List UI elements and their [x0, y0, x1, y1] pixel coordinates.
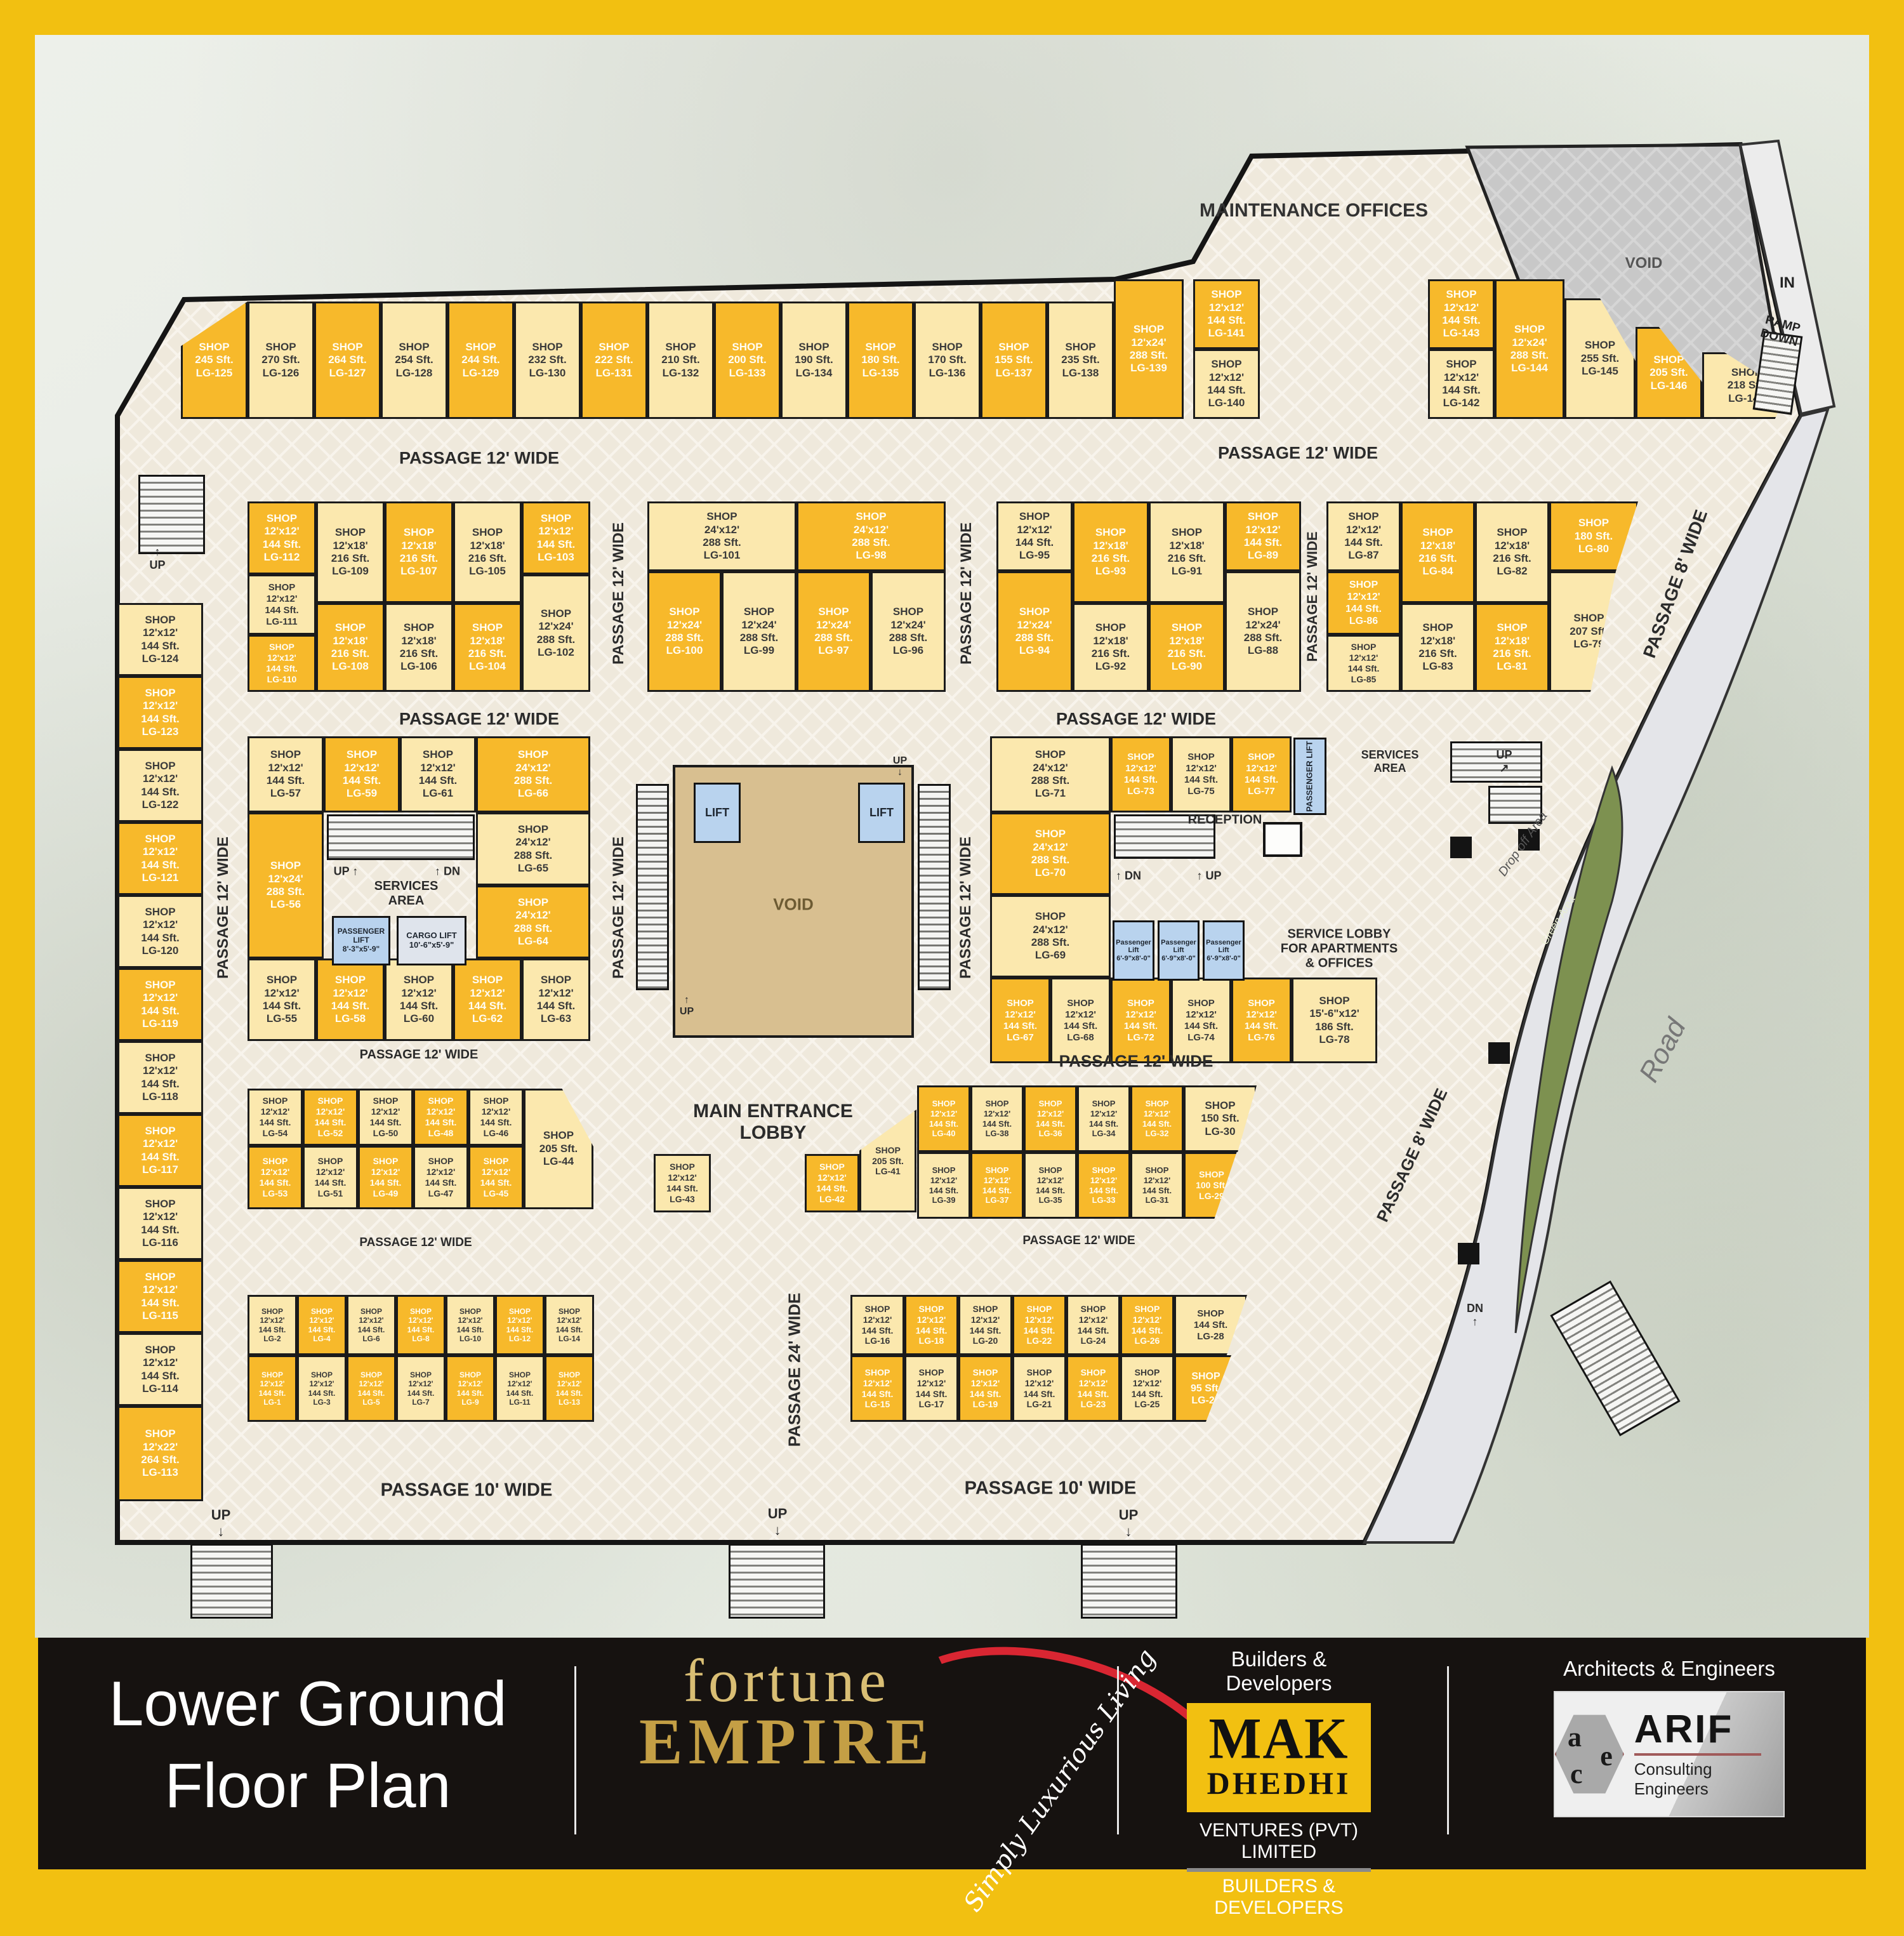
arif-subtitle: Consulting Engineers: [1634, 1760, 1783, 1799]
shop-LG-60: SHOP12'x12'144 Sft.LG-60: [385, 958, 453, 1041]
shop-LG-85: SHOP12'x12'144 Sft.LG-85: [1326, 635, 1401, 692]
shop-LG-73: SHOP12'x12'144 Sft.LG-73: [1111, 736, 1171, 812]
shop-LG-67: SHOP12'x12'144 Sft.LG-67: [990, 978, 1050, 1063]
lift-zone: PASSENGER LIFT: [1293, 738, 1326, 815]
shop-LG-16: SHOP12'x12'144 Sft.LG-16: [850, 1295, 904, 1355]
shop-LG-56: SHOP12'x24'288 Sft.LG-56: [248, 812, 324, 958]
stair-zone: [1550, 1280, 1680, 1436]
cargo-zone: CARGO LIFT10'-6"x5'-9": [397, 916, 466, 965]
developer-subtitle2: BUILDERS & DEVELOPERS: [1180, 1876, 1377, 1919]
shop-LG-143: SHOP12'x12'144 Sft.LG-143: [1428, 279, 1495, 349]
shop-LG-107: SHOP12'x18'216 Sft.LG-107: [385, 501, 453, 603]
shop-LG-110: SHOP12'x12'144 Sft.LG-110: [248, 635, 316, 692]
shop-LG-95: SHOP12'x12'144 Sft.LG-95: [996, 501, 1073, 571]
shop-LG-76: SHOP12'x12'144 Sft.LG-76: [1231, 978, 1292, 1063]
shop-LG-97: SHOP12'x24'288 Sft.LG-97: [797, 571, 871, 692]
shop-LG-1: SHOP12'x12'144 Sft.LG-1: [248, 1355, 297, 1422]
shop-LG-46: SHOP12'x12'144 Sft.LG-46: [468, 1089, 524, 1146]
shop-LG-45: SHOP12'x12'144 Sft.LG-45: [468, 1146, 524, 1209]
shop-LG-112: SHOP12'x12'144 Sft.LG-112: [248, 501, 316, 574]
shop-LG-89: SHOP12'x12'144 Sft.LG-89: [1225, 501, 1301, 571]
title-line1: Lower Ground: [57, 1663, 559, 1745]
architect-heading: Architects & Engineers: [1536, 1657, 1802, 1681]
plan-label: PASSAGE 12' WIDE: [958, 522, 975, 665]
shop-LG-55: SHOP12'x12'144 Sft.LG-55: [248, 958, 316, 1041]
shop-LG-115: SHOP12'x12'144 Sft.LG-115: [117, 1260, 203, 1333]
shop-LG-26: SHOP12'x12'144 Sft.LG-26: [1120, 1295, 1174, 1355]
plan-label: Green Area: [1538, 894, 1578, 948]
plan-label: RECEPTION: [1188, 813, 1262, 828]
shop-LG-118: SHOP12'x12'144 Sft.LG-118: [117, 1041, 203, 1114]
plan-label: IN: [1780, 274, 1795, 292]
plan-label: SERVICES AREA: [1361, 748, 1419, 775]
shop-LG-92: SHOP12'x18'216 Sft.LG-92: [1073, 603, 1149, 692]
shop-LG-120: SHOP12'x12'144 Sft.LG-120: [117, 895, 203, 968]
plan-label: PASSAGE 12' WIDE: [610, 837, 628, 979]
shop-LG-132: SHOP210 Sft.LG-132: [647, 302, 714, 419]
shop-LG-75: SHOP12'x12'144 Sft.LG-75: [1171, 736, 1231, 812]
mak-logo-text: MAK: [1208, 1713, 1349, 1765]
shop-LG-109: SHOP12'x18'216 Sft.LG-109: [316, 501, 385, 603]
plan-label: PASSAGE 12' WIDE: [610, 522, 628, 665]
shop-LG-106: SHOP12'x18'216 Sft.LG-106: [385, 603, 453, 692]
plan-label: ↑ UP: [149, 545, 165, 572]
stair-zone: [1081, 1544, 1177, 1619]
plan-label: Road: [1633, 1014, 1693, 1087]
shop-LG-31: SHOP12'x12'144 Sft.LG-31: [1130, 1152, 1184, 1219]
plan-label: PASSAGE 8' WIDE: [1639, 507, 1712, 661]
shop-LG-86: SHOP12'x12'144 Sft.LG-86: [1326, 571, 1401, 635]
shop-LG-130: SHOP232 Sft.LG-130: [514, 302, 581, 419]
desk-zone: [1263, 822, 1302, 857]
shop-LG-48: SHOP12'x12'144 Sft.LG-48: [413, 1089, 468, 1146]
shop-LG-140: SHOP12'x12'144 Sft.LG-140: [1193, 349, 1260, 419]
shop-LG-12: SHOP12'x12'144 Sft.LG-12: [495, 1295, 545, 1355]
shop-LG-105: SHOP12'x18'216 Sft.LG-105: [453, 501, 522, 603]
shop-LG-43: SHOP12'x12'144 Sft.LG-43: [654, 1154, 711, 1212]
lift-zone: LIFT: [694, 783, 741, 843]
shop-LG-15: SHOP12'x12'144 Sft.LG-15: [850, 1355, 904, 1422]
shop-LG-11: SHOP12'x12'144 Sft.LG-11: [495, 1355, 545, 1422]
plan-title: Lower Ground Floor Plan: [57, 1663, 559, 1826]
mak-dhedhi-logo: MAK DHEDHI: [1187, 1703, 1371, 1812]
shop-LG-74: SHOP12'x12'144 Sft.LG-74: [1171, 978, 1231, 1063]
shop-LG-108: SHOP12'x18'216 Sft.LG-108: [316, 603, 385, 692]
plan-label: SERVICE LOBBY FOR APARTMENTS & OFFICES: [1281, 927, 1398, 971]
shop-LG-125: SHOP245 Sft.LG-125: [181, 302, 248, 419]
shop-LG-98: SHOP24'x12'288 Sft.LG-98: [797, 501, 946, 571]
shop-LG-23: SHOP12'x12'144 Sft.LG-23: [1066, 1355, 1120, 1422]
shop-LG-19: SHOP12'x12'144 Sft.LG-19: [958, 1355, 1012, 1422]
shop-LG-135: SHOP180 Sft.LG-135: [847, 302, 914, 419]
plan-label: PASSAGE 8' WIDE: [1373, 1085, 1452, 1225]
shop-LG-52: SHOP12'x12'144 Sft.LG-52: [303, 1089, 358, 1146]
shop-LG-17: SHOP12'x12'144 Sft.LG-17: [904, 1355, 958, 1422]
shop-LG-33: SHOP12'x12'144 Sft.LG-33: [1077, 1152, 1130, 1219]
shop-LG-129: SHOP244 Sft.LG-129: [447, 302, 514, 419]
plan-label: PASSAGE 12' WIDE: [399, 449, 559, 468]
lift-zone: PassengerLift6'-9"x8'-0": [1203, 920, 1245, 981]
shop-LG-10: SHOP12'x12'144 Sft.LG-10: [446, 1295, 495, 1355]
lift-zone: LIFT: [858, 783, 905, 843]
shop-LG-57: SHOP12'x12'144 Sft.LG-57: [248, 736, 324, 812]
shop-LG-8: SHOP12'x12'144 Sft.LG-8: [396, 1295, 446, 1355]
plan-label: PASSAGE 12' WIDE: [359, 1236, 472, 1250]
shop-LG-124: SHOP12'x12'144 Sft.LG-124: [117, 603, 203, 676]
shop-LG-144: SHOP12'x24'288 Sft.LG-144: [1495, 279, 1564, 419]
plan-label: UP ↓: [893, 755, 907, 778]
shop-LG-42: SHOP12'x12'144 Sft.LG-42: [805, 1154, 859, 1212]
shop-LG-146: SHOP205 Sft.LG-146: [1636, 327, 1702, 419]
shop-LG-7: SHOP12'x12'144 Sft.LG-7: [396, 1355, 446, 1422]
shop-LG-13: SHOP12'x12'144 Sft.LG-13: [545, 1355, 594, 1422]
plan-label: ↑ DN: [435, 865, 460, 878]
shop-LG-63: SHOP12'x12'144 Sft.LG-63: [522, 958, 590, 1041]
shop-LG-139: SHOP12'x24'288 Sft.LG-139: [1114, 279, 1184, 419]
shop-LG-128: SHOP254 Sft.LG-128: [381, 302, 447, 419]
shop-LG-138: SHOP235 Sft.LG-138: [1047, 302, 1114, 419]
shop-LG-90: SHOP12'x18'216 Sft.LG-90: [1149, 603, 1225, 692]
shop-LG-50: SHOP12'x12'144 Sft.LG-50: [358, 1089, 413, 1146]
shop-LG-83: SHOP12'x18'216 Sft.LG-83: [1401, 603, 1475, 692]
shop-LG-39: SHOP12'x12'144 Sft.LG-39: [917, 1152, 970, 1219]
plan-label: UP ↓: [211, 1507, 231, 1540]
plan-label: VOID: [773, 895, 814, 915]
arif-name: ARIF: [1634, 1710, 1783, 1749]
shop-LG-29: SHOP100 Sft.LG-29: [1184, 1152, 1240, 1219]
shop-LG-79: SHOP207 Sft.LG-79: [1549, 571, 1629, 692]
arif-logo: a e c ARIF Consulting Engineers: [1554, 1691, 1785, 1817]
aec-cube-icon: a e c: [1555, 1713, 1624, 1795]
shop-LG-69: SHOP24'x12'288 Sft.LG-69: [990, 895, 1111, 978]
shop-LG-34: SHOP12'x12'144 Sft.LG-34: [1077, 1085, 1130, 1152]
shop-LG-137: SHOP155 Sft.LG-137: [981, 302, 1047, 419]
shop-LG-77: SHOP12'x12'144 Sft.LG-77: [1231, 736, 1292, 812]
post-zone: [1458, 1243, 1479, 1264]
plan-label: DN ↑: [1467, 1302, 1483, 1329]
stair-zone: [190, 1544, 273, 1619]
shop-LG-59: SHOP12'x12'144 Sft.LG-59: [324, 736, 400, 812]
plan-label: PASSAGE 12' WIDE: [215, 837, 232, 979]
shop-LG-94: SHOP12'x24'288 Sft.LG-94: [996, 571, 1073, 692]
plan-label: MAIN ENTRANCE LOBBY: [693, 1101, 853, 1144]
shop-LG-68: SHOP12'x12'144 Sft.LG-68: [1050, 978, 1111, 1063]
shop-LG-127: SHOP264 Sft.LG-127: [314, 302, 381, 419]
shop-LG-99: SHOP12'x24'288 Sft.LG-99: [722, 571, 797, 692]
cube-letter-a: a: [1568, 1721, 1582, 1753]
shop-LG-30: SHOP150 Sft.LG-30: [1184, 1085, 1257, 1152]
shop-LG-3: SHOP12'x12'144 Sft.LG-3: [297, 1355, 347, 1422]
shop-LG-102: SHOP12'x24'288 Sft.LG-102: [522, 574, 590, 692]
stair-zone: [729, 1544, 825, 1619]
shop-LG-100: SHOP12'x24'288 Sft.LG-100: [647, 571, 722, 692]
esc-zone: [636, 784, 669, 990]
shop-LG-84: SHOP12'x18'216 Sft.LG-84: [1401, 501, 1475, 603]
shop-LG-101: SHOP24'x12'288 Sft.LG-101: [647, 501, 797, 571]
cube-letter-e: e: [1600, 1740, 1613, 1772]
shop-LG-80: SHOP180 Sft.LG-80: [1549, 501, 1638, 571]
plan-label: UP ↓: [1119, 1507, 1139, 1540]
shop-LG-62: SHOP12'x12'144 Sft.LG-62: [453, 958, 522, 1041]
shop-LG-37: SHOP12'x12'144 Sft.LG-37: [970, 1152, 1024, 1219]
shop-LG-65: SHOP24'x12'288 Sft.LG-65: [476, 812, 590, 885]
shop-LG-136: SHOP170 Sft.LG-136: [914, 302, 981, 419]
shop-LG-21: SHOP12'x12'144 Sft.LG-21: [1012, 1355, 1066, 1422]
stair-zone: [327, 814, 475, 860]
shop-LG-121: SHOP12'x12'144 Sft.LG-121: [117, 822, 203, 895]
developer-heading: Builders & Developers: [1180, 1647, 1377, 1695]
shop-LG-40: SHOP12'x12'144 Sft.LG-40: [917, 1085, 970, 1152]
shop-LG-22: SHOP12'x12'144 Sft.LG-22: [1012, 1295, 1066, 1355]
shop-LG-141: SHOP12'x12'144 Sft.LG-141: [1193, 279, 1260, 349]
shop-LG-91: SHOP12'x18'216 Sft.LG-91: [1149, 501, 1225, 603]
footer-divider: [1117, 1666, 1119, 1834]
plan-label: SERVICES AREA: [374, 879, 439, 908]
shop-LG-54: SHOP12'x12'144 Sft.LG-54: [248, 1089, 303, 1146]
shop-LG-142: SHOP12'x12'144 Sft.LG-142: [1428, 349, 1495, 419]
shop-LG-113: SHOP12'x22'264 Sft.LG-113: [117, 1406, 203, 1501]
shop-LG-64: SHOP24'x12'288 Sft.LG-64: [476, 885, 590, 958]
plan-label: ↑ DN: [1116, 870, 1141, 883]
shop-LG-38: SHOP12'x12'144 Sft.LG-38: [970, 1085, 1024, 1152]
developer-subtitle1: VENTURES (PVT) LIMITED: [1180, 1820, 1377, 1863]
shop-LG-6: SHOP12'x12'144 Sft.LG-6: [347, 1295, 396, 1355]
plan-label: ↑ UP: [1196, 870, 1221, 883]
shop-LG-134: SHOP190 Sft.LG-134: [781, 302, 847, 419]
shop-LG-78: SHOP15'-6"x12'186 Sft.LG-78: [1292, 978, 1377, 1063]
arif-block: Architects & Engineers a e c ARIF Consul…: [1536, 1657, 1802, 1817]
shop-LG-88: SHOP12'x24'288 Sft.LG-88: [1225, 571, 1301, 692]
shop-LG-111: SHOP12'x12'144 Sft.LG-111: [248, 574, 316, 635]
plan-label: PASSAGE 10' WIDE: [381, 1480, 553, 1501]
footer-bar: Lower Ground Floor Plan fortune EMPIRE S…: [38, 1638, 1866, 1869]
shop-LG-103: SHOP12'x12'144 Sft.LG-103: [522, 501, 590, 574]
plan-label: PASSAGE 12' WIDE: [1056, 710, 1216, 729]
shop-LG-14: SHOP12'x12'144 Sft.LG-14: [545, 1295, 594, 1355]
shop-LG-53: SHOP12'x12'144 Sft.LG-53: [248, 1146, 303, 1209]
shop-LG-114: SHOP12'x12'144 Sft.LG-114: [117, 1333, 203, 1406]
plan-label: PASSAGE 24' WIDE: [785, 1293, 805, 1447]
plan-label: UP ↑: [334, 865, 359, 878]
shop-LG-20: SHOP12'x12'144 Sft.LG-20: [958, 1295, 1012, 1355]
shop-LG-32: SHOP12'x12'144 Sft.LG-32: [1130, 1085, 1184, 1152]
stair-zone: [138, 475, 205, 554]
shop-LG-27: SHOP95 Sft.LG-27: [1174, 1355, 1238, 1422]
plan-label: UP ↓: [768, 1506, 788, 1539]
cube-letter-c: c: [1570, 1758, 1583, 1790]
shop-LG-119: SHOP12'x12'144 Sft.LG-119: [117, 968, 203, 1041]
plan-label: PASSAGE 12' WIDE: [1304, 531, 1321, 661]
shop-LG-41: SHOP205 Sft.LG-41: [859, 1110, 916, 1212]
shop-LG-66: SHOP24'x12'288 Sft.LG-66: [476, 736, 590, 812]
lift-zone: PASSENGERLIFT8'-3"x5'-9": [332, 916, 390, 965]
esc-zone: [918, 784, 951, 990]
shop-LG-70: SHOP24'x12'288 Sft.LG-70: [990, 812, 1111, 895]
shop-LG-5: SHOP12'x12'144 Sft.LG-5: [347, 1355, 396, 1422]
shop-LG-24: SHOP12'x12'144 Sft.LG-24: [1066, 1295, 1120, 1355]
lift-zone: PassengerLift6'-9"x8'-0": [1158, 920, 1200, 981]
arif-underline: [1634, 1753, 1761, 1756]
plan-label: PASSAGE 12' WIDE: [360, 1048, 479, 1063]
shop-LG-44: SHOP205 Sft.LG-44: [524, 1089, 593, 1209]
footer-divider: [574, 1666, 576, 1834]
shop-LG-49: SHOP12'x12'144 Sft.LG-49: [358, 1146, 413, 1209]
shop-LG-71: SHOP24'x12'288 Sft.LG-71: [990, 736, 1111, 812]
shop-LG-122: SHOP12'x12'144 Sft.LG-122: [117, 749, 203, 822]
footer-divider: [1447, 1666, 1449, 1834]
shop-LG-9: SHOP12'x12'144 Sft.LG-9: [446, 1355, 495, 1422]
shop-LG-82: SHOP12'x18'216 Sft.LG-82: [1475, 501, 1549, 603]
shop-LG-104: SHOP12'x18'216 Sft.LG-104: [453, 603, 522, 692]
shop-LG-61: SHOP12'x12'144 Sft.LG-61: [400, 736, 476, 812]
shop-LG-117: SHOP12'x12'144 Sft.LG-117: [117, 1114, 203, 1187]
shop-LG-18: SHOP12'x12'144 Sft.LG-18: [904, 1295, 958, 1355]
shop-LG-4: SHOP12'x12'144 Sft.LG-4: [297, 1295, 347, 1355]
shop-LG-131: SHOP222 Sft.LG-131: [581, 302, 647, 419]
shop-LG-93: SHOP12'x18'216 Sft.LG-93: [1073, 501, 1149, 603]
plan-label: ↑ UP: [680, 995, 694, 1018]
shop-LG-133: SHOP200 Sft.LG-133: [714, 302, 781, 419]
shop-LG-96: SHOP12'x24'288 Sft.LG-96: [871, 571, 946, 692]
shop-LG-51: SHOP12'x12'144 Sft.LG-51: [303, 1146, 358, 1209]
shop-LG-35: SHOP12'x12'144 Sft.LG-35: [1024, 1152, 1077, 1219]
plan-label: VOID: [1625, 255, 1663, 272]
title-line2: Floor Plan: [57, 1745, 559, 1827]
plan-label: PASSAGE 12' WIDE: [1022, 1234, 1135, 1248]
shop-LG-58: SHOP12'x12'144 Sft.LG-58: [316, 958, 385, 1041]
shop-LG-81: SHOP12'x18'216 Sft.LG-81: [1475, 603, 1549, 692]
shop-LG-87: SHOP12'x12'144 Sft.LG-87: [1326, 501, 1401, 571]
shop-LG-123: SHOP12'x12'144 Sft.LG-123: [117, 676, 203, 749]
developer-rule: [1187, 1868, 1371, 1872]
plan-layer: SHOP245 Sft.LG-125SHOP270 Sft.LG-126SHOP…: [0, 0, 1904, 1904]
plan-label: PASSAGE 12' WIDE: [957, 837, 975, 979]
plan-label: PASSAGE 10' WIDE: [965, 1478, 1137, 1499]
lift-zone: PassengerLift6'-9"x8'-0": [1113, 920, 1154, 981]
shop-LG-28: SHOP144 Sft.LG-28: [1174, 1295, 1247, 1355]
shop-LG-126: SHOP270 Sft.LG-126: [248, 302, 314, 419]
shop-LG-116: SHOP12'x12'144 Sft.LG-116: [117, 1187, 203, 1260]
plan-label: UP ↗: [1496, 748, 1512, 775]
shop-LG-2: SHOP12'x12'144 Sft.LG-2: [248, 1295, 297, 1355]
shop-LG-47: SHOP12'x12'144 Sft.LG-47: [413, 1146, 468, 1209]
post-zone: [1450, 837, 1472, 858]
plan-label: PASSAGE 12' WIDE: [399, 710, 559, 729]
shop-LG-145: SHOP255 Sft.LG-145: [1564, 298, 1636, 419]
shop-LG-72: SHOP12'x12'144 Sft.LG-72: [1111, 978, 1171, 1063]
shop-LG-36: SHOP12'x12'144 Sft.LG-36: [1024, 1085, 1077, 1152]
plan-label: PASSAGE 12' WIDE: [1059, 1052, 1213, 1071]
plan-label: PASSAGE 12' WIDE: [1218, 444, 1378, 463]
shop-LG-25: SHOP12'x12'144 Sft.LG-25: [1120, 1355, 1174, 1422]
post-zone: [1488, 1042, 1510, 1064]
plan-label: MAINTENANCE OFFICES: [1200, 200, 1428, 222]
mak-dhedhi-block: Builders & Developers MAK DHEDHI VENTURE…: [1180, 1647, 1377, 1919]
